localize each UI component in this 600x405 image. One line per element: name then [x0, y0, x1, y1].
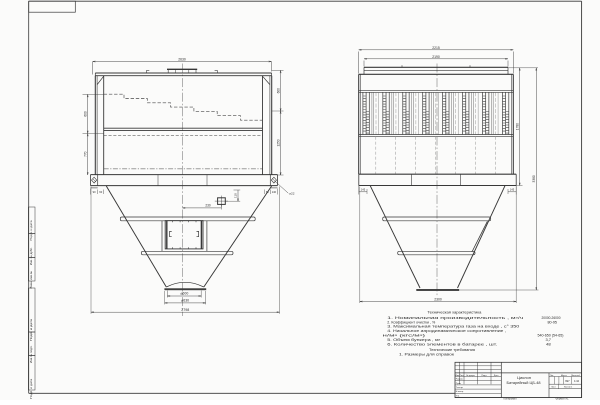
svg-text:6. Количество элементов в бата: 6. Количество элементов в батарее , шт. [387, 343, 497, 347]
svg-text:н/м² (кгс/м²): н/м² (кгс/м²) [383, 334, 426, 338]
svg-text:2630: 2630 [178, 58, 186, 62]
svg-text:2798: 2798 [181, 308, 189, 312]
svg-text:110: 110 [233, 193, 237, 198]
svg-text:Разраб.: Разраб. [456, 379, 464, 381]
svg-text:3380: 3380 [532, 175, 536, 182]
svg-text:1780: 1780 [516, 123, 520, 130]
svg-text:Лит.: Лит. [550, 375, 554, 377]
svg-text:Подп. и дата: Подп. и дата [31, 219, 33, 240]
svg-text:Лист: Лист [551, 387, 556, 389]
svg-text:1:10: 1:10 [574, 379, 580, 383]
svg-text:540-650 (54-65): 540-650 (54-65) [538, 334, 564, 338]
svg-text:Подп. и дата: Подп. и дата [31, 318, 33, 341]
svg-text:Т.контр.: Т.контр. [456, 387, 464, 389]
svg-text:2190: 2190 [432, 55, 440, 59]
svg-text:⌀630: ⌀630 [181, 299, 189, 303]
svg-text:⌀600: ⌀600 [180, 292, 188, 296]
svg-text:1. Номинальная производительно: 1. Номинальная производительность , м³/ч [387, 316, 523, 320]
svg-text:697: 697 [565, 379, 570, 383]
svg-text:Инв.№ подл.: Инв.№ подл. [30, 345, 33, 363]
svg-text:Циклон: Циклон [517, 376, 531, 380]
svg-text:20000-26000: 20000-26000 [542, 316, 561, 320]
svg-text:Листов 1: Листов 1 [564, 387, 573, 389]
svg-text:3,7: 3,7 [546, 338, 552, 342]
svg-text:Взам. инв.№: Взам. инв.№ [30, 270, 33, 288]
svg-text:600: 600 [276, 88, 280, 94]
svg-text:№ докум.: № докум. [466, 374, 475, 377]
svg-text:Пров.: Пров. [456, 383, 462, 385]
svg-text:Масштаб: Масштаб [571, 375, 580, 377]
svg-text:Лист: Лист [460, 375, 464, 377]
svg-text:770: 770 [84, 151, 88, 157]
svg-text:Техническая характеристика: Техническая характеристика [427, 310, 481, 314]
svg-text:1250: 1250 [276, 139, 280, 146]
svg-text:Подп.: Подп. [482, 375, 488, 377]
svg-text:230: 230 [205, 203, 211, 207]
svg-text:Инв. № дубл.: Инв. № дубл. [30, 247, 33, 265]
svg-text:Формат А1: Формат А1 [555, 397, 569, 400]
svg-text:145: 145 [361, 188, 366, 192]
svg-text:145: 145 [510, 188, 515, 192]
svg-text:⌀22: ⌀22 [289, 192, 295, 196]
svg-text:2215: 2215 [432, 46, 440, 50]
svg-text:1. Размеры для справок: 1. Размеры для справок [399, 352, 455, 356]
svg-text:80-95: 80-95 [548, 320, 558, 324]
svg-text:48: 48 [546, 343, 551, 347]
svg-text:Технические требования: Технические требования [429, 348, 475, 352]
svg-text:Подп. и дата: Подп. и дата [31, 378, 33, 399]
svg-text:Копировал: Копировал [504, 397, 517, 400]
svg-text:140: 140 [272, 190, 277, 194]
svg-text:Батарейный ЦБ-48: Батарейный ЦБ-48 [507, 381, 541, 385]
svg-text:Утв.: Утв. [456, 395, 460, 397]
svg-text:Масса: Масса [561, 375, 568, 377]
svg-text:2300: 2300 [434, 297, 442, 301]
svg-text:5. Объем бункера , м³: 5. Объем бункера , м³ [387, 338, 441, 342]
svg-text:Н.контр.: Н.контр. [456, 391, 464, 393]
svg-text:600: 600 [84, 111, 88, 117]
svg-text:4. Начальное аэродинамическое: 4. Начальное аэродинамическое сопротивле… [387, 329, 506, 333]
